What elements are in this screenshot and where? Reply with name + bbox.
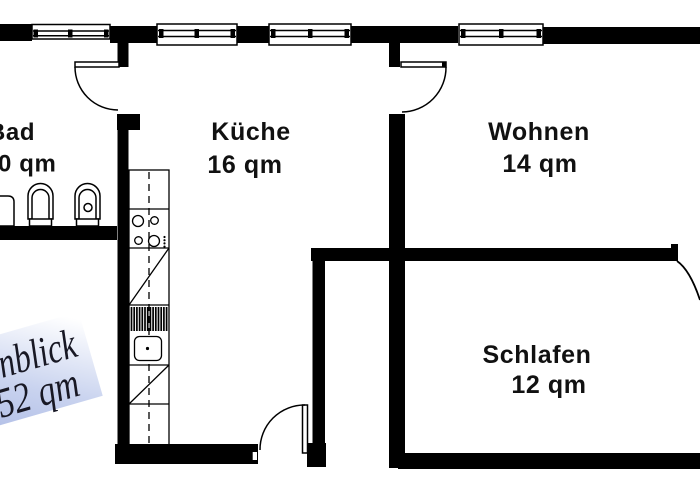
svg-text:12 qm: 12 qm [511, 371, 586, 399]
svg-text:14 qm: 14 qm [502, 150, 577, 178]
svg-text:Bad: Bad [0, 119, 35, 146]
svg-text:Schlafen: Schlafen [483, 341, 592, 369]
svg-text:Küche: Küche [211, 118, 290, 146]
svg-text:0 qm: 0 qm [0, 151, 56, 178]
svg-text:16 qm: 16 qm [207, 151, 282, 179]
svg-text:Wohnen: Wohnen [488, 118, 590, 146]
